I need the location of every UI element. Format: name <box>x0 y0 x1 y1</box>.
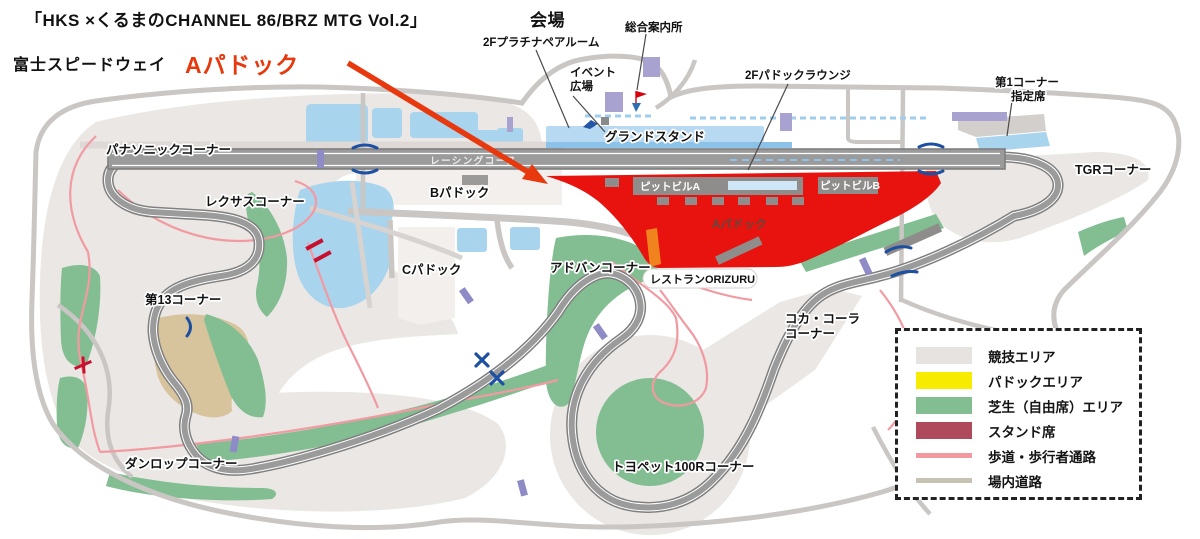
map-legend: 競技エリア パドックエリア 芝生（自由席）エリア スタンド席 歩道・歩行者通路 … <box>895 328 1142 500</box>
gate-icon-e-top <box>919 144 943 147</box>
road-x848 <box>848 88 903 142</box>
info-flag-icon <box>632 91 647 112</box>
parking-7 <box>457 228 487 252</box>
label-toyopet-100r-corner: トヨペット100Rコーナー <box>612 460 754 474</box>
circuit-map-page: レーシングコース 「HKS ×くるまのCHANNEL 86/BRZ MTG Vo… <box>0 0 1200 539</box>
legend-row-stand: スタンド席 <box>916 418 1139 443</box>
label-advan-corner: アドバンコーナー <box>550 261 651 275</box>
page-title: 「HKS ×くるまのCHANNEL 86/BRZ MTG Vol.2」 <box>25 10 427 30</box>
pit-annex <box>605 178 619 187</box>
info-building <box>601 117 609 125</box>
label-panasonic-corner: パナソニックコーナー <box>106 143 231 157</box>
legend-label: パドックエリア <box>988 371 1083 391</box>
event-plaza-building <box>605 92 623 112</box>
legend-row-road: 場内道路 <box>916 468 1139 493</box>
label-cocacola-corner-2: コーナー <box>785 327 835 341</box>
building-4 <box>952 112 1007 121</box>
road-info-center <box>656 60 695 108</box>
building-3 <box>780 113 792 131</box>
legend-label: 競技エリア <box>988 346 1056 366</box>
legend-row-lawn: 芝生（自由席）エリア <box>916 393 1139 418</box>
legend-swatch-road <box>916 478 972 483</box>
pit-building-a-lounge <box>728 181 797 190</box>
label-event-plaza-2: 広場 <box>570 79 593 93</box>
page-title-venue: 会場 <box>530 10 565 30</box>
parking-8 <box>510 227 540 250</box>
parking-1 <box>306 104 368 148</box>
legend-label: 歩道・歩行者通路 <box>988 446 1096 466</box>
legend-swatch-competition <box>916 347 972 364</box>
label-grandstand: グランドスタンド <box>605 129 705 144</box>
label-info-center: 総合案内所 <box>625 20 683 34</box>
legend-swatch-lawn <box>916 397 972 414</box>
label-pit-building-a: ピットビルA <box>640 180 700 193</box>
label-13th-corner: 第13コーナー <box>145 292 221 307</box>
label-cocacola-corner-1: コカ・コーラ <box>785 312 860 326</box>
label-c-paddock: Cパドック <box>402 263 461 277</box>
label-first-corner-1: 第1コーナー <box>995 75 1059 89</box>
plaza-building-2 <box>643 57 660 77</box>
label-tgr-corner: TGRコーナー <box>1075 163 1151 177</box>
legend-row-competition: 競技エリア <box>916 343 1139 368</box>
label-b-paddock: Bパドック <box>430 186 489 200</box>
legend-label: 芝生（自由席）エリア <box>988 396 1123 416</box>
crossing-tick-leg <box>859 257 873 275</box>
label-event-plaza-1: イベント <box>570 66 616 79</box>
label-platinum-room: 2Fプラチナペアルーム <box>483 35 600 49</box>
crossing-tick-straight <box>317 150 324 168</box>
road-bpaddock-v2 <box>497 220 512 268</box>
legend-swatch-stand <box>916 422 972 439</box>
label-paddock-lounge: 2Fパドックラウンジ <box>745 69 851 82</box>
legend-label: 場内道路 <box>988 471 1042 491</box>
label-lexus-corner: レクサスコーナー <box>205 195 305 209</box>
bpaddock-building <box>462 175 488 185</box>
crossing-tick-300r <box>517 479 528 496</box>
legend-row-paddock: パドックエリア <box>916 368 1139 393</box>
highlight-title: Aパドック <box>185 52 299 78</box>
legend-row-walkway: 歩道・歩行者通路 <box>916 443 1139 468</box>
label-a-paddock: Aパドック <box>712 218 767 231</box>
legend-label: スタンド席 <box>988 421 1056 441</box>
road-bpaddock-v1 <box>390 220 392 278</box>
legend-swatch-paddock <box>916 372 972 389</box>
parking-2 <box>372 108 402 138</box>
leader-platinum <box>536 50 569 128</box>
label-restaurant: レストランORIZURU <box>650 273 755 286</box>
tick-1 <box>507 117 513 132</box>
label-pit-building-b: ピットビルB <box>820 179 880 192</box>
circuit-name: 富士スピードウェイ <box>13 55 166 74</box>
crossing-icon-1 <box>476 354 488 366</box>
legend-swatch-walkway <box>916 453 972 458</box>
crossing-tick-advan2 <box>593 323 608 340</box>
crossing-tick-advan1 <box>459 287 474 304</box>
label-dunlop-corner: ダンロップコーナー <box>125 456 238 471</box>
label-first-corner-2: 指定席 <box>1011 89 1046 103</box>
